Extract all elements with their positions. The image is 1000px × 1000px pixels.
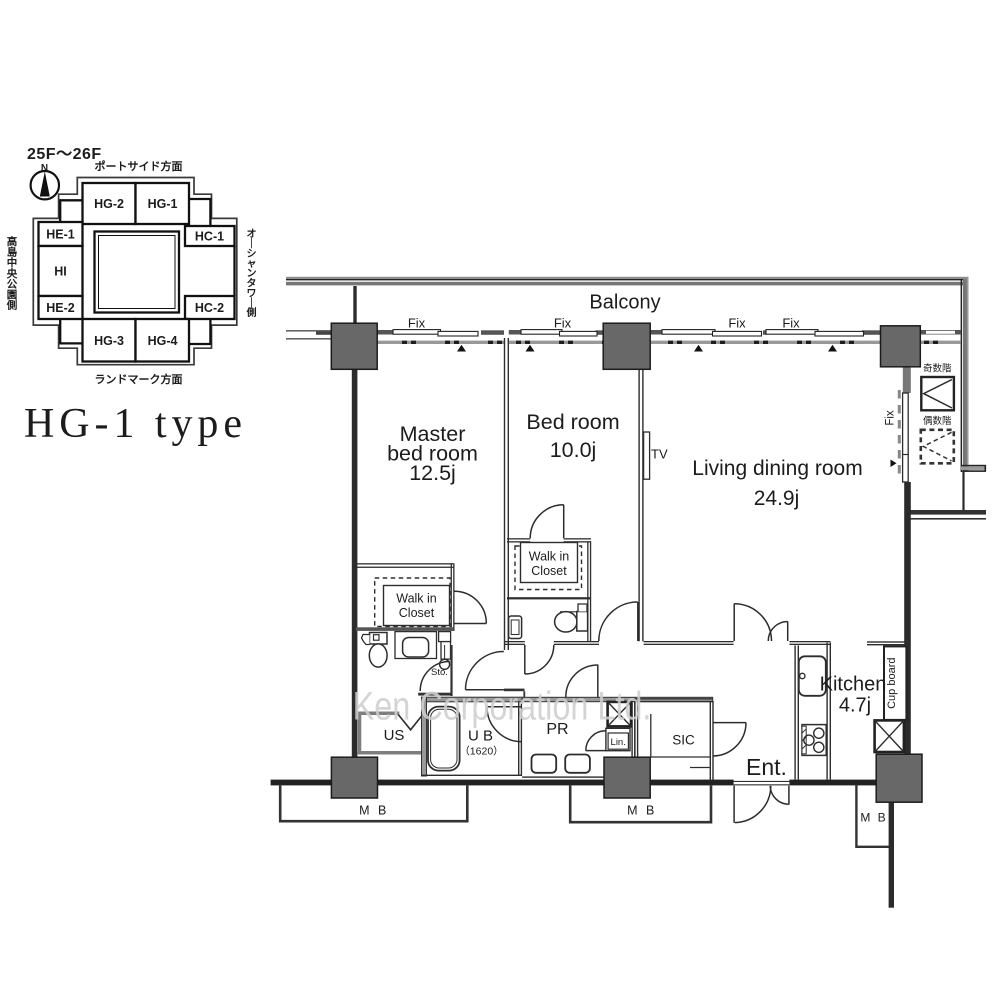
svg-text:US: US: [384, 727, 405, 744]
svg-text:Living dining room: Living dining room: [692, 457, 862, 480]
svg-text:Fix: Fix: [554, 316, 572, 331]
svg-text:Sto.: Sto.: [431, 667, 448, 678]
svg-text:HG-4: HG-4: [148, 334, 178, 348]
svg-text:SIC: SIC: [672, 733, 695, 748]
svg-text:M B: M B: [860, 811, 887, 825]
svg-text:Fix: Fix: [782, 316, 800, 331]
svg-text:Fix: Fix: [728, 316, 746, 331]
svg-text:HC-2: HC-2: [195, 301, 224, 315]
svg-text:HC-1: HC-1: [195, 230, 224, 244]
svg-text:Lin.: Lin.: [611, 737, 626, 748]
svg-text:M B: M B: [359, 804, 389, 818]
svg-text:Fix: Fix: [885, 410, 897, 426]
svg-text:HG-1: HG-1: [148, 197, 178, 211]
svg-text:25F〜26F: 25F〜26F: [27, 146, 102, 163]
svg-text:Cup board: Cup board: [886, 658, 898, 709]
svg-text:HI: HI: [54, 265, 67, 279]
svg-text:10.0j: 10.0j: [550, 438, 597, 462]
svg-text:ランドマーク方面: ランドマーク方面: [95, 372, 183, 386]
svg-text:オ｜シャンタワ｜側: オ｜シャンタワ｜側: [246, 228, 257, 319]
svg-text:Closet: Closet: [531, 564, 567, 578]
svg-text:Ent.: Ent.: [746, 754, 787, 780]
svg-text:奇数階: 奇数階: [923, 363, 952, 375]
svg-text:Balcony: Balcony: [589, 292, 660, 314]
svg-text:M B: M B: [627, 804, 657, 818]
svg-text:Walk in: Walk in: [396, 592, 437, 606]
svg-text:HE-1: HE-1: [46, 228, 75, 242]
svg-text:U B: U B: [468, 728, 493, 745]
svg-text:HG-3: HG-3: [94, 334, 124, 348]
svg-text:12.5j: 12.5j: [409, 461, 456, 485]
svg-text:HE-2: HE-2: [46, 301, 75, 315]
svg-text:偶数階: 偶数階: [923, 415, 952, 427]
svg-text:Fix: Fix: [408, 316, 426, 331]
svg-text:Ken Corporation Ltd.: Ken Corporation Ltd.: [353, 683, 652, 728]
svg-text:（1620）: （1620）: [459, 746, 503, 758]
svg-text:Walk in: Walk in: [529, 550, 570, 564]
svg-text:Closet: Closet: [399, 606, 435, 620]
svg-text:ポートサイド方面: ポートサイド方面: [95, 159, 183, 173]
svg-text:24.9j: 24.9j: [754, 487, 800, 510]
svg-text:HG-2: HG-2: [94, 197, 124, 211]
svg-text:Kitchen: Kitchen: [820, 674, 887, 696]
svg-text:4.7j: 4.7j: [839, 695, 871, 717]
svg-text:TV: TV: [651, 447, 668, 462]
svg-text:高島中央公園側: 高島中央公園側: [6, 235, 18, 312]
svg-text:Bed room: Bed room: [526, 410, 619, 434]
